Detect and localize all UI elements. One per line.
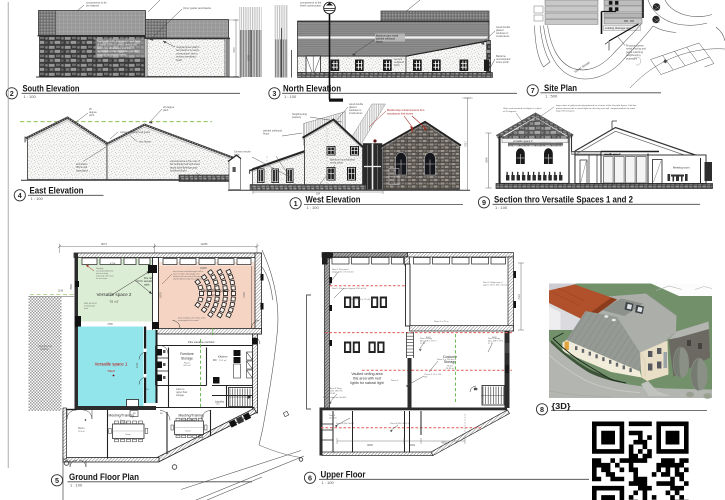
svg-text:fascia: fascia [376, 41, 383, 44]
svg-text:stone plinth: stone plinth [496, 61, 509, 64]
svg-text:Room 3 (W x 77 m2) B: Room 3 (W x 77 m2) B [351, 299, 373, 301]
svg-text:Ground Floor Plan: Ground Floor Plan [69, 471, 139, 482]
svg-text:zinc fascia: zinc fascia [139, 141, 151, 144]
svg-text:East Elevation: East Elevation [30, 186, 84, 196]
svg-text:Room 4 x 750 plan 4: Room 4 x 750 plan 4 [437, 359, 457, 361]
svg-text:Meeting/Training: Meeting/Training [179, 414, 204, 418]
svg-text:7: 7 [531, 86, 535, 95]
svg-text:{3D}: {3D} [552, 401, 572, 411]
svg-text:to white GRP to clearly define: to white GRP to clearly define the [97, 42, 137, 46]
svg-text:Section thro Versatile Spaces: Section thro Versatile Spaces 1 and 2 [494, 194, 633, 205]
svg-text:4: 4 [18, 191, 22, 200]
svg-text:storage: storage [176, 394, 185, 397]
svg-text:South Elevation: South Elevation [23, 84, 80, 94]
svg-text:7507: 7507 [232, 47, 236, 53]
svg-text:finish: finish [394, 64, 400, 67]
svg-text:building: building [40, 348, 49, 351]
svg-text:Room 4 x 25 xx: Room 4 x 25 xx [434, 321, 449, 323]
svg-text:1 : 100: 1 : 100 [31, 196, 44, 201]
svg-text:4756: 4756 [107, 323, 113, 326]
svg-text:FD: FD [133, 413, 136, 415]
svg-text:'87 m2': '87 m2' [212, 294, 221, 298]
svg-text:7517: 7517 [464, 141, 468, 147]
svg-text:Versatile space 2: Versatile space 2 [97, 292, 132, 297]
svg-text:original stonework below: original stonework below [97, 53, 126, 57]
svg-text:on site room: on site room [96, 277, 107, 280]
svg-text:1 : 500: 1 : 500 [545, 93, 558, 98]
svg-text:Kitchen: Kitchen [218, 355, 228, 359]
svg-text:approx 160 x 103 x 45 m2: approx 160 x 103 x 45 m2 [483, 284, 508, 287]
svg-text:of 25 degrees: of 25 degrees [503, 110, 517, 113]
svg-text:downpipes: downpipes [76, 169, 89, 172]
svg-text:lights for natural light: lights for natural light [350, 381, 383, 385]
svg-text:single 40m x 70 m2 del: single 40m x 70 m2 del [332, 272, 354, 274]
svg-text:7120: 7120 [243, 292, 246, 298]
svg-text:fence: fence [263, 133, 270, 136]
svg-text:versatile space 1: versatile space 1 [604, 153, 621, 156]
svg-text:Roof 1: Flat panel approx 53x5: Roof 1: Flat panel approx 53x5 m2 t4 [332, 287, 367, 290]
svg-text:Furniture: Furniture [180, 352, 194, 356]
svg-text:9000: 9000 [367, 443, 373, 447]
svg-text:8770: 8770 [160, 292, 163, 298]
svg-text:11280: 11280 [200, 242, 208, 246]
svg-text:finish: finish [176, 58, 183, 62]
svg-text:versatile space 2: versatile space 2 [513, 139, 533, 143]
svg-text:4734: 4734 [110, 263, 116, 266]
svg-text:FD: FD [160, 413, 163, 415]
svg-text:1361: 1361 [410, 443, 416, 447]
svg-text:1 : 100: 1 : 100 [284, 94, 297, 99]
svg-text:5845: 5845 [486, 157, 489, 163]
svg-text:8073: 8073 [101, 242, 107, 246]
svg-text:7120: 7120 [518, 294, 521, 300]
svg-text:23.2 m²: 23.2 m² [219, 359, 227, 362]
svg-text:Room: Room [125, 434, 131, 436]
svg-text:level: level [84, 308, 89, 310]
svg-text:FD: FD [213, 358, 217, 362]
svg-text:1 : 100: 1 : 100 [307, 205, 320, 210]
svg-text:13.8 m²: 13.8 m² [78, 430, 85, 433]
svg-text:Room: Room [185, 431, 191, 433]
svg-text:1 : 100: 1 : 100 [322, 480, 335, 485]
svg-text:large thermal gains: large thermal gains [556, 110, 576, 113]
svg-text:Upvc gutter and fascia: Upvc gutter and fascia [183, 6, 211, 10]
svg-text:Meeting room: Meeting room [673, 166, 690, 170]
svg-text:Storage: Storage [181, 357, 193, 361]
svg-text:27.99: 27.99 [488, 343, 494, 345]
svg-text:Glass roof mounted roof lights: Glass roof mounted roof lights in a pitc… [503, 107, 542, 110]
svg-text:1 : 100: 1 : 100 [24, 94, 37, 99]
svg-text:2400: 2400 [248, 55, 251, 61]
svg-text:4310: 4310 [441, 441, 447, 445]
svg-text:'53 m2': '53 m2' [109, 300, 119, 304]
svg-text:large notice of gallery with p: large notice of gallery with plasterboar… [556, 104, 637, 107]
svg-text:North Elevation: North Elevation [283, 84, 341, 94]
svg-text:1: 1 [294, 199, 298, 208]
svg-text:small panes: small panes [496, 35, 510, 38]
svg-text:1 : 100: 1 : 100 [70, 482, 83, 487]
svg-text:Room: Room [78, 427, 84, 430]
svg-text:pitch: pitch [89, 114, 95, 117]
svg-text:sheet construction: sheet construction [300, 4, 322, 8]
svg-text:1199: 1199 [58, 290, 64, 293]
svg-text:Tamlyn Render stop bead used h: Tamlyn Render stop bead used here [97, 39, 141, 43]
svg-text:Biodiversity enhancements 3no: Biodiversity enhancements 3no [387, 108, 425, 112]
svg-text:1 : 100: 1 : 100 [495, 205, 508, 210]
svg-text:18.85: 18.85 [330, 393, 336, 395]
svg-text:x2m: x2m [216, 404, 220, 406]
svg-text:Panel 4 (f0x 50x10 t): Panel 4 (f0x 50x10 t) [390, 422, 409, 425]
svg-text:Versatile space 3: Versatile space 3 [201, 288, 234, 293]
svg-text:Vaulted ceiling area: Vaulted ceiling area [351, 372, 382, 376]
svg-text:34.6 m²: 34.6 m² [183, 364, 191, 367]
svg-text:be retained: be retained [86, 4, 100, 8]
svg-text:tumbled blocks: tumbled blocks [170, 170, 187, 173]
svg-text:Versatile space 1: Versatile space 1 [95, 362, 128, 367]
svg-text:8: 8 [540, 405, 544, 414]
svg-text:2: 2 [10, 89, 14, 98]
svg-text:walls: walls [144, 283, 150, 286]
svg-text:10265: 10265 [200, 267, 207, 270]
svg-text:rendered render depending on t: rendered render depending on the [97, 49, 138, 53]
svg-text:portion placed with a natural: portion placed with a natural light fan … [556, 107, 636, 110]
svg-text:rearranged to the need: rearranged to the need [178, 319, 198, 322]
svg-text:woodstone bird boxes: woodstone bird boxes [387, 112, 414, 116]
svg-text:walls: walls [234, 154, 240, 157]
svg-text:7680: 7680 [70, 284, 73, 290]
svg-text:stone plinth: stone plinth [330, 162, 343, 165]
svg-text:Room 4: Room 4 [391, 380, 399, 382]
svg-text:small panes: small panes [349, 112, 363, 115]
svg-text:old v new structures and the: old v new structures and the [97, 46, 131, 50]
svg-text:FD: FD [474, 388, 477, 391]
svg-text:copper sheeting lead gutter: copper sheeting lead gutter [120, 131, 150, 134]
svg-text:3142: 3142 [136, 362, 139, 368]
svg-text:stands delivered by this self: stands delivered by this self gains [173, 278, 203, 281]
svg-text:5: 5 [55, 476, 59, 485]
svg-text:6: 6 [308, 473, 312, 482]
svg-text:23.62 m²: 23.62 m² [446, 367, 455, 370]
svg-text:property: property [292, 116, 302, 119]
svg-text:properties: properties [626, 57, 638, 60]
svg-text:'74m2': '74m2' [107, 369, 116, 373]
svg-text:9: 9 [482, 198, 486, 207]
svg-text:Site Plan: Site Plan [544, 83, 577, 94]
svg-text:West Elevation: West Elevation [306, 195, 361, 205]
svg-text:3: 3 [272, 89, 276, 98]
svg-text:Upper Floor: Upper Floor [321, 469, 366, 480]
svg-text:pitch: pitch [163, 109, 169, 112]
svg-text:Fire escape corridor: Fire escape corridor [188, 340, 215, 344]
svg-text:this area with roof: this area with roof [353, 377, 381, 381]
